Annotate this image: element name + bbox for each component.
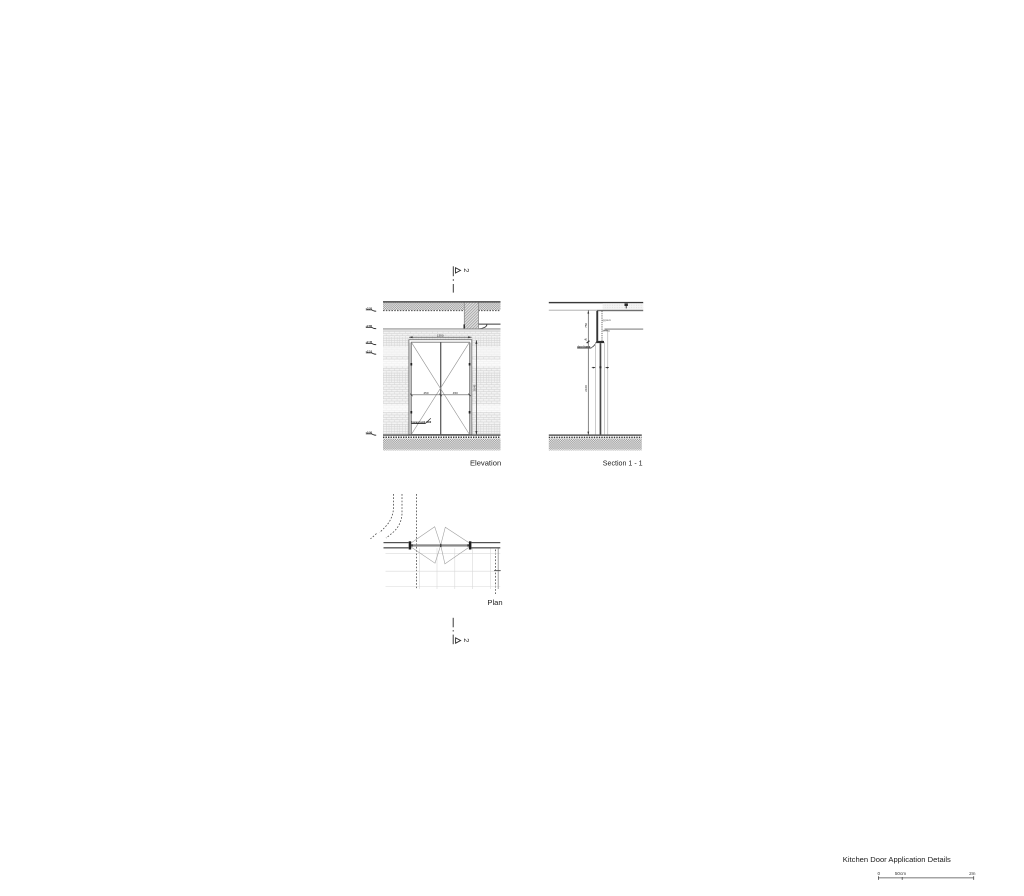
svg-text:750: 750 xyxy=(584,323,588,328)
svg-text:450: 450 xyxy=(453,391,458,395)
svg-text:gypsum: gypsum xyxy=(603,319,611,322)
svg-text:2m: 2m xyxy=(969,871,976,876)
svg-text:2045: 2045 xyxy=(473,384,477,391)
svg-text:Elevation: Elevation xyxy=(470,459,501,468)
svg-text:50cm: 50cm xyxy=(895,871,906,876)
svg-text:450: 450 xyxy=(423,391,428,395)
svg-text:2100: 2100 xyxy=(584,385,588,392)
svg-text:Kitchen Door Application Detai: Kitchen Door Application Details xyxy=(843,855,951,864)
svg-text:2: 2 xyxy=(462,268,471,272)
svg-text:1300: 1300 xyxy=(437,333,444,337)
svg-text:0: 0 xyxy=(878,871,881,876)
svg-text:2: 2 xyxy=(462,638,471,642)
svg-text:Plan: Plan xyxy=(487,598,502,607)
svg-text:Section 1 - 1: Section 1 - 1 xyxy=(603,460,643,468)
svg-text:celling: celling xyxy=(603,329,610,332)
